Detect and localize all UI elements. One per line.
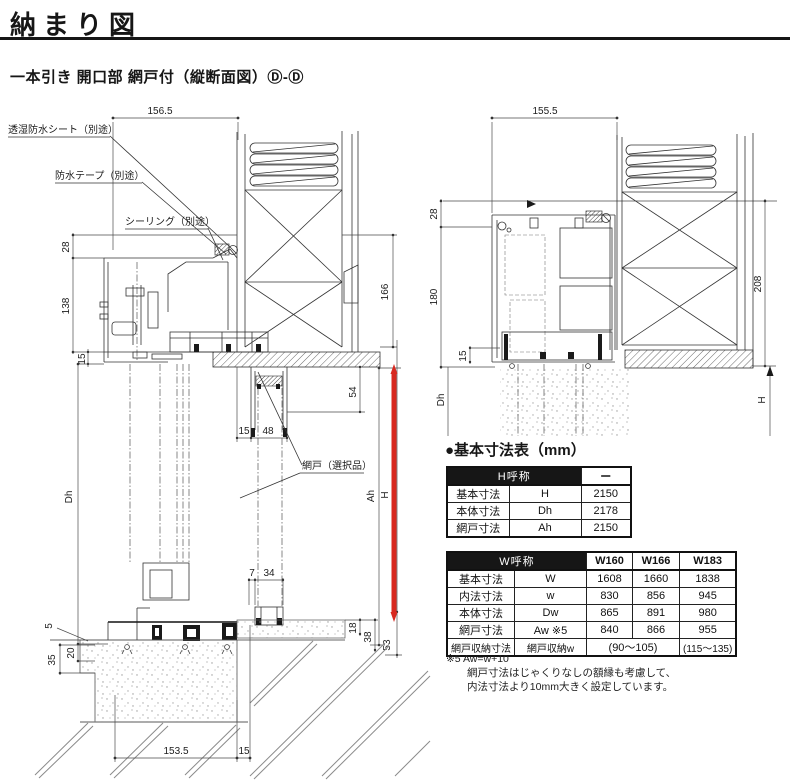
concrete-base (80, 640, 237, 722)
callout-sealing: シーリング（別途） (125, 215, 223, 260)
callout-sealing-label: シーリング（別途） (125, 215, 215, 228)
insulation-batt-right (626, 145, 716, 188)
dim-left-166: 166 (380, 283, 391, 300)
dim-right-28: 28 (429, 208, 440, 220)
dim-right-H: H (757, 396, 768, 403)
table-row: 内法寸法 w 830 856 945 (447, 588, 736, 605)
w-dimension-table: W呼称 W160 W166 W183 基本寸法 W 1608 1660 1838… (446, 551, 737, 657)
spec-table-heading: ●基本寸法表（mm） (445, 439, 760, 460)
dim-left-38: 38 (363, 631, 374, 643)
dim-left-H: H (380, 491, 391, 498)
row-symbol: Dw (515, 605, 587, 622)
dim-left-15-head: 15 (77, 353, 88, 365)
w-table-col-W160: W160 (587, 552, 633, 570)
wall-framing-brace (245, 190, 342, 347)
dim-right-Dh: Dh (436, 394, 447, 407)
floor-hatch-right (625, 350, 753, 368)
dim-left-bottom-width: 153.5 (163, 746, 188, 757)
footnote-line: 網戸寸法はじゃくりなしの額縁も考慮して、 (446, 666, 676, 680)
table-row: 網戸寸法 Ah 2150 (447, 520, 631, 538)
dim-left-138: 138 (61, 297, 72, 314)
dim-right-top-width: 155.5 (532, 106, 557, 117)
spec-tables-section: ●基本寸法表（mm） H呼称 ー 基本寸法 H 2150 本体寸法 Dh 217… (440, 439, 760, 657)
highlight-H-dimension (391, 364, 398, 622)
callout-screen-label: 網戸（選択品） (302, 459, 372, 472)
dim-left-48: 48 (262, 426, 274, 437)
section-subtitle: 一本引き 開口部 網戸付（縦断面図）Ⓓ-Ⓓ (10, 66, 304, 87)
dim-left-18: 18 (348, 622, 359, 634)
row-label: 本体寸法 (447, 605, 515, 622)
wall-section-left-drawing (237, 131, 358, 352)
table-row: 基本寸法 W 1608 1660 1838 (447, 570, 736, 588)
row-label: 網戸寸法 (447, 520, 509, 538)
row-symbol: Ah (509, 520, 581, 538)
row-value: 1838 (680, 570, 737, 588)
w-table-header: W呼称 (447, 552, 587, 570)
dim-left-Ah: Ah (366, 490, 377, 502)
row-symbol: w (515, 588, 587, 605)
row-value: 866 (633, 622, 680, 639)
title-underline (0, 37, 790, 40)
row-value: 2150 (581, 485, 631, 503)
row-value: 856 (633, 588, 680, 605)
footnote-line: 内法寸法より10mm大きく設定しています。 (446, 680, 676, 694)
row-value: 830 (587, 588, 633, 605)
dim-left-35: 35 (47, 654, 58, 666)
dim-left-7: 7 (249, 568, 255, 579)
table-row: 本体寸法 Dh 2178 (447, 503, 631, 520)
foundation-right (500, 368, 630, 436)
dim-left-34: 34 (263, 568, 275, 579)
dim-left-15-pocket: 15 (238, 426, 250, 437)
dim-right-15: 15 (458, 350, 469, 362)
row-value: (115〜135) (680, 639, 737, 657)
w-table-col-W166: W166 (633, 552, 680, 570)
door-panel-lines (130, 364, 189, 562)
row-symbol: W (515, 570, 587, 588)
row-symbol: H (509, 485, 581, 503)
row-value: 891 (633, 605, 680, 622)
h-dimension-table: H呼称 ー 基本寸法 H 2150 本体寸法 Dh 2178 網戸寸法 Ah 2… (446, 466, 632, 538)
dim-left-20: 20 (66, 647, 77, 659)
veranda-slab (237, 620, 345, 638)
row-label: 本体寸法 (447, 503, 509, 520)
footnote-line: ※5 Aw=w+10 (446, 652, 676, 666)
wall-section-right-drawing (617, 133, 753, 368)
wall-framing-brace-right (622, 192, 737, 345)
footnotes: ※5 Aw=w+10 網戸寸法はじゃくりなしの額縁も考慮して、 内法寸法より10… (446, 652, 676, 694)
h-table-header-value: ー (581, 467, 631, 485)
row-label: 基本寸法 (447, 570, 515, 588)
door-bottom-rail (143, 563, 189, 600)
callout-sheet-label: 透湿防水シート（別途） (8, 123, 118, 136)
row-value: 955 (680, 622, 737, 639)
callout-tape: 防水テープ（別途） (55, 169, 226, 254)
row-label: 内法寸法 (447, 588, 515, 605)
dim-left-54: 54 (348, 386, 359, 398)
row-label: 網戸寸法 (447, 622, 515, 639)
table-row: 網戸寸法 Aw ※5 840 866 955 (447, 622, 736, 639)
row-value: 980 (680, 605, 737, 622)
veranda-floor-hatch (213, 352, 380, 367)
row-value: 1608 (587, 570, 633, 588)
row-symbol: Aw ※5 (515, 622, 587, 639)
row-symbol: Dh (509, 503, 581, 520)
row-value: 945 (680, 588, 737, 605)
dim-right-208: 208 (753, 275, 764, 292)
left-drawing-vertical-section: 156.5 透湿防水シート（別途） 防水テープ（別途） シーリング（別途） (8, 106, 430, 779)
dim-left-bottom-15: 15 (238, 746, 250, 757)
w-table-col-W183: W183 (680, 552, 737, 570)
row-label: 基本寸法 (447, 485, 509, 503)
dim-left-top-width: 156.5 (147, 106, 172, 117)
dim-left-5: 5 (44, 623, 55, 629)
row-value: 865 (587, 605, 633, 622)
wall-bracket (344, 265, 358, 303)
dim-left-28: 28 (61, 241, 72, 253)
table-row: 本体寸法 Dw 865 891 980 (447, 605, 736, 622)
insulation-batt (250, 143, 338, 186)
row-value: 840 (587, 622, 633, 639)
row-value: 2150 (581, 520, 631, 538)
callout-tape-label: 防水テープ（別途） (55, 169, 144, 182)
frame-profile-right (492, 211, 615, 368)
dim-left-Dh: Dh (64, 491, 75, 504)
row-value: 1660 (633, 570, 680, 588)
h-table-header: H呼称 (447, 467, 581, 485)
sealing-hatch (215, 244, 229, 255)
table-row: 基本寸法 H 2150 (447, 485, 631, 503)
head-frame-profile (100, 244, 268, 362)
right-drawing-vertical-section: 155.5 (429, 106, 777, 436)
row-value: 2178 (581, 503, 631, 520)
dim-right-180: 180 (429, 288, 440, 305)
